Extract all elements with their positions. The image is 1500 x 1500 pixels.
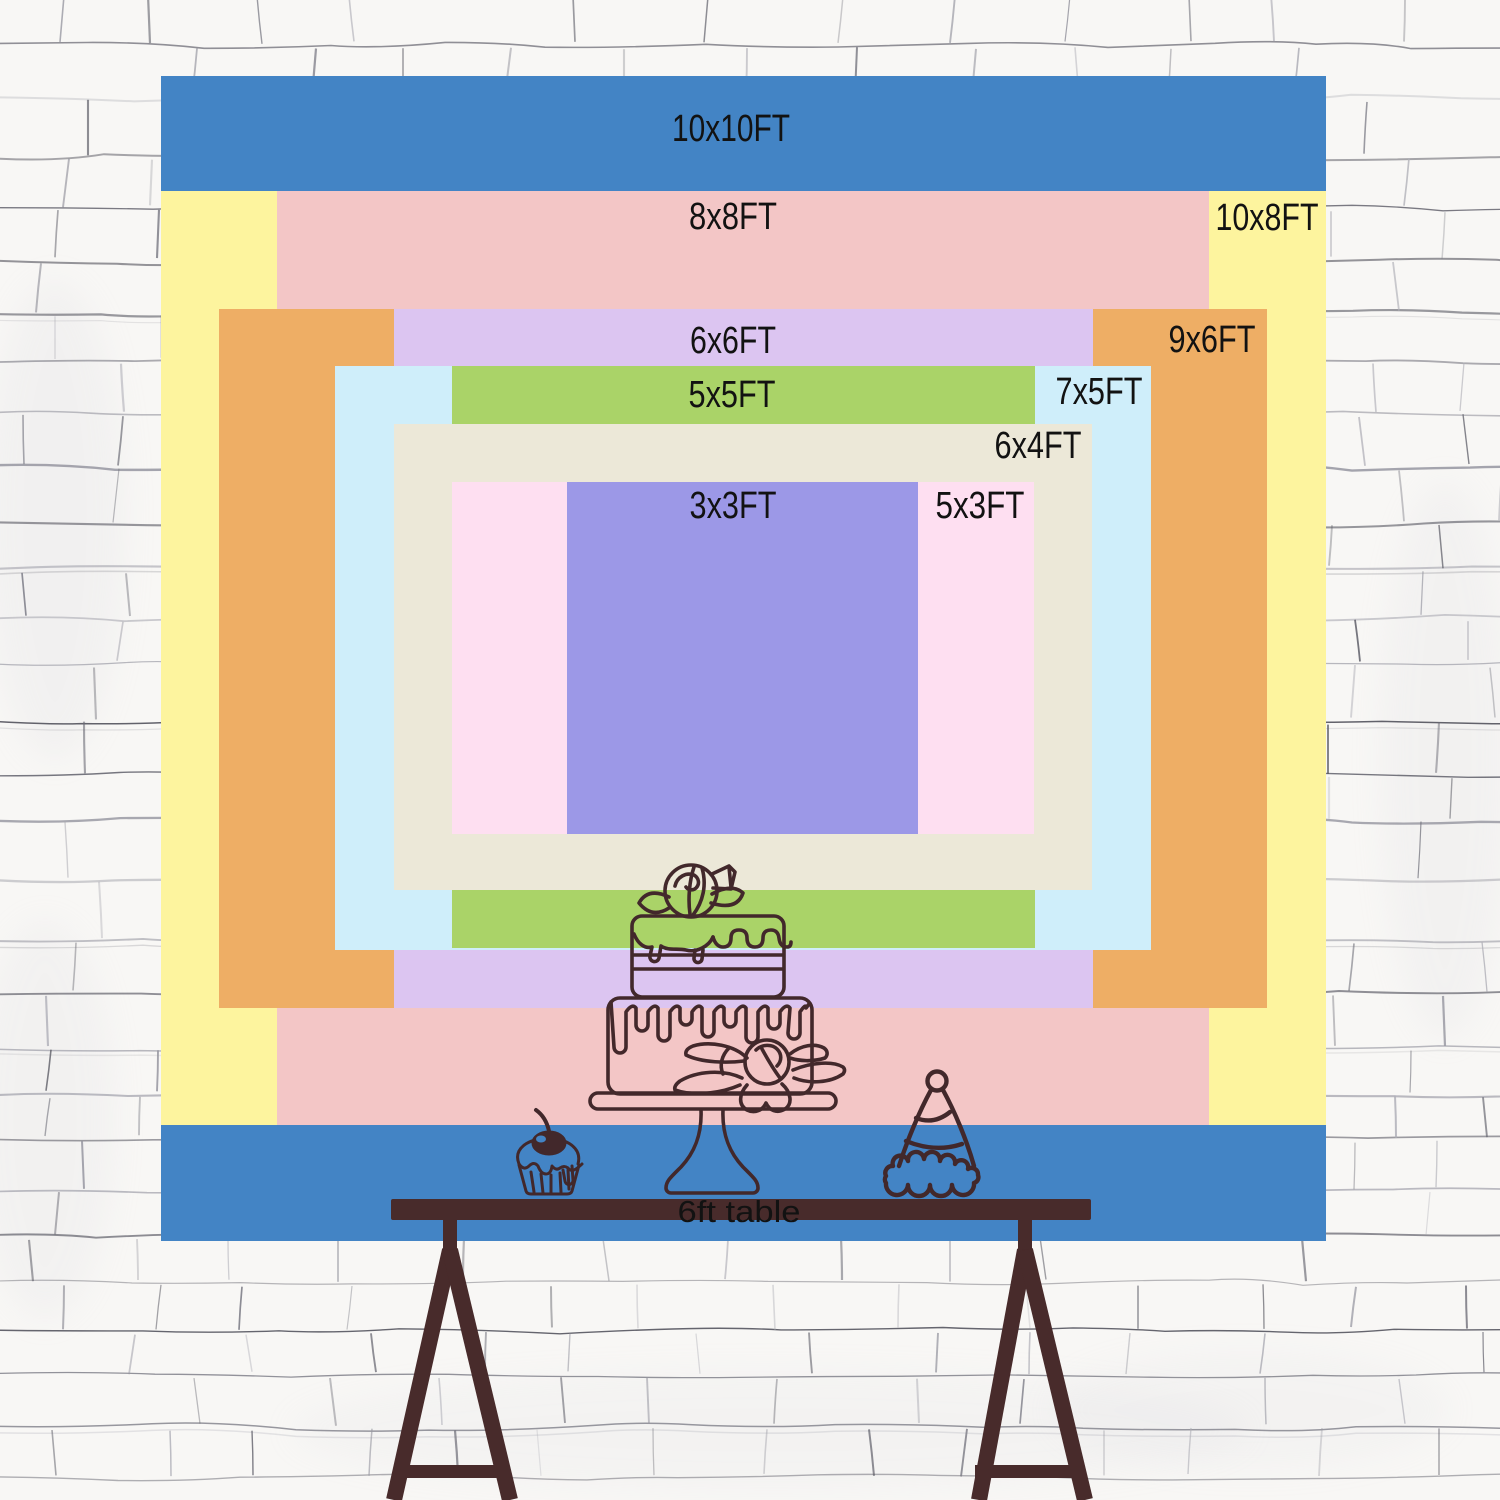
svg-text:8x8FT: 8x8FT — [689, 196, 777, 238]
svg-text:7x5FT: 7x5FT — [1056, 371, 1143, 413]
svg-text:6ft table: 6ft table — [678, 1194, 801, 1229]
svg-text:10x10FT: 10x10FT — [672, 108, 790, 150]
svg-text:6x4FT: 6x4FT — [995, 425, 1082, 467]
svg-text:5x3FT: 5x3FT — [936, 485, 1025, 527]
svg-text:10x8FT: 10x8FT — [1216, 197, 1319, 239]
svg-text:5x5FT: 5x5FT — [689, 374, 776, 416]
svg-text:6x6FT: 6x6FT — [690, 320, 776, 362]
svg-text:9x6FT: 9x6FT — [1169, 319, 1256, 361]
svg-text:3x3FT: 3x3FT — [690, 485, 777, 527]
